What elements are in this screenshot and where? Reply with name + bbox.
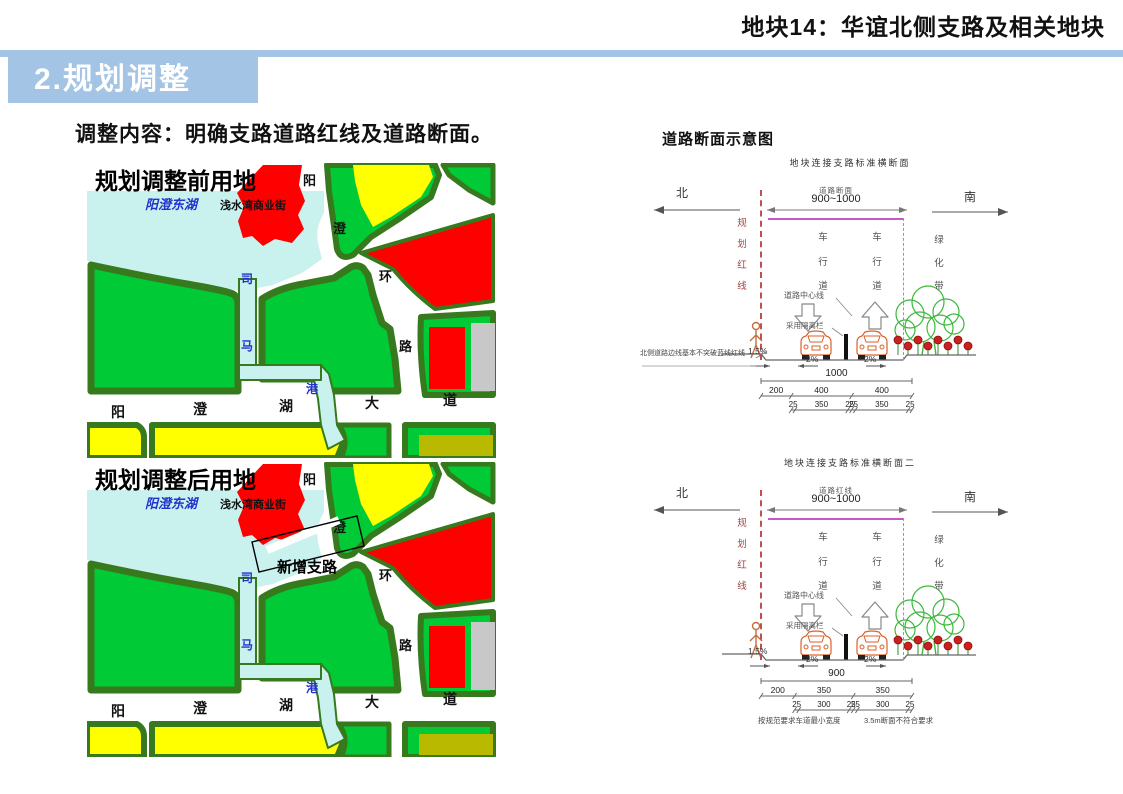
flower-icon [964,342,972,350]
flower-icon [894,636,902,644]
parcel-red-block [429,626,465,688]
avenue-label-char: 道 [443,691,457,707]
dim-sub-segment: 350 [868,400,896,409]
slope-label: 1.5% [748,646,767,656]
red-line-dashed [760,190,762,360]
map-title: 规划调整后用地 [95,467,256,493]
commercial-street-label: 浅水湾商业街 [220,198,286,212]
river [239,664,321,679]
dim-sub-segment: 25 [779,400,807,409]
north-arrow-icon [654,206,664,214]
flower-icon [924,342,932,350]
dim-sub-segment: 25 [839,400,867,409]
centerline-leader [836,298,852,316]
map-before: 规划调整前用地阳澄东湖浅水湾商业街阳澄环路阳澄湖大道司马港 [87,163,497,458]
avenue-label-char: 湖 [279,697,293,713]
ring-road-label-char: 路 [399,339,413,354]
magenta-roof-line [768,518,904,520]
green-belt-label: 绿化带 [932,230,946,298]
dim-segment: 400 [862,385,902,395]
dim-sub-segment: 350 [807,400,835,409]
car-icon [801,331,831,355]
dim-segment: 200 [756,385,796,395]
ring-road-label-char: 环 [379,568,392,583]
barrier-leader [832,628,843,636]
section-banner-title: 2.规划调整 [34,57,191,103]
ring-road-label-char: 环 [379,269,392,284]
dim-arrow-icon [899,507,907,513]
tree-icon [944,614,964,634]
car-wheel [879,355,886,360]
parcel-yellow [87,425,144,458]
right-edge-dashed [903,218,904,360]
bottom-note: 按规范要求车道最小宽度 [758,715,858,726]
barrier-label: 采用隔离栏 [786,320,824,331]
tree-icon [933,299,959,325]
top-rule [0,50,1123,57]
lake-label: 阳澄东湖 [145,197,200,212]
centerline-label: 道路中心线 [784,590,824,601]
avenue-label-char: 大 [365,395,379,411]
tree-icon [896,300,924,328]
flower-icon [954,336,962,344]
lane-label-right: 车行道 [870,226,884,300]
south-arrow-icon [998,508,1008,516]
lane-label-left: 车行道 [816,226,830,300]
up-arrow-icon [862,602,888,629]
flower-icon [934,636,942,644]
parcel-gray-block [471,622,495,690]
avenue-label-char: 阳 [111,404,125,420]
dim-total: 900 [761,668,912,679]
dim-sub-segment: 25 [783,700,811,709]
flower-icon [944,342,952,350]
river-label-char: 马 [241,339,253,353]
slope-label: 2% [864,654,876,664]
cross-section-1: 地块连接支路标准横断面北南道路断面900~1000规划红线车行道车行道绿化带道路… [640,152,1120,450]
river-label-char: 司 [241,571,253,585]
tree-icon [896,600,924,628]
flower-icon [894,336,902,344]
ring-road-label-char: 路 [399,638,413,653]
parcel-yellow [152,724,345,757]
avenue-label-char: 澄 [193,700,208,716]
dim-segment: 350 [804,685,844,695]
slide: 地块14：华谊北侧支路及相关地块 2.规划调整 调整内容：明确支路道路红线及道路… [0,0,1123,794]
centerline-label: 道路中心线 [784,290,824,301]
parcel-olive-block [419,435,493,456]
cross-section-2: 地块连接支路标准横断面二北南道路红线900~1000规划红线车行道车行道绿化带道… [640,452,1120,750]
ring-road-label-char: 阳 [303,173,316,188]
dim-sub-segment: 300 [869,700,897,709]
avenue-label-char: 阳 [111,703,125,719]
up-arrow-icon [862,302,888,329]
south-arrow-icon [998,208,1008,216]
parcel-red-block [429,327,465,389]
red-line-label: 规划红线 [735,514,749,598]
avenue-label-char: 道 [443,392,457,408]
flower-icon [914,336,922,344]
parcel-green [339,425,389,458]
dim-segment: 400 [801,385,841,395]
car-icon [857,331,887,355]
dim-arrow-icon [767,507,775,513]
car-wheel [823,655,830,660]
car-icon [857,631,887,655]
dim-sub-segment: 300 [810,700,838,709]
cross-section-panel-title: 道路断面示意图 [662,128,774,149]
slope-label: 2% [806,354,818,364]
flower-icon [924,642,932,650]
river-label-char: 港 [306,381,319,396]
lane-label-left: 车行道 [816,526,830,600]
flower-icon [944,642,952,650]
car-wheel [879,655,886,660]
tree-icon [933,599,959,625]
flower-icon [934,336,942,344]
dim-total: 1000 [761,368,912,379]
river-label-char: 港 [306,680,319,695]
car-wheel [823,355,830,360]
ring-road-label-char: 阳 [303,472,316,487]
map-after: 规划调整后用地阳澄东湖浅水湾商业街阳澄环路阳澄湖大道司马港新增支路 [87,462,497,757]
parcel-gray-block [471,323,495,391]
dim-arrow-icon [767,207,775,213]
river-label-char: 司 [241,272,253,286]
dim-sub-segment: 25 [841,700,869,709]
river [239,365,321,380]
lake-label: 阳澄东湖 [145,496,200,511]
lane-label-right: 车行道 [870,526,884,600]
right-edge-dashed [903,518,904,660]
adjustment-intro-text: 调整内容：明确支路道路红线及道路断面。 [75,118,493,148]
width-value: 900~1000 [770,193,902,205]
dim-arrow-icon [899,207,907,213]
car-icon [801,631,831,655]
parcel-olive-block [419,734,493,755]
red-line-label: 规划红线 [735,214,749,298]
person-icon [753,323,760,330]
tree-icon [944,314,964,334]
dim-segment: 350 [863,685,903,695]
north-arrow-icon [654,506,664,514]
red-line-dashed [760,490,762,660]
barrier-icon [844,634,848,660]
flower-icon [914,636,922,644]
parcel-green [339,724,389,757]
river-label-char: 马 [241,638,253,652]
commercial-street-label: 浅水湾商业街 [220,497,286,511]
avenue-label-char: 澄 [193,401,208,417]
parcel-yellow [87,724,144,757]
centerline-leader [836,598,852,616]
dim-sub-segment: 25 [896,400,924,409]
barrier-leader [832,328,843,336]
dim-sub-segment: 25 [896,700,924,709]
barrier-icon [844,334,848,360]
bottom-note: 3.5m断面不符合要求 [864,715,964,726]
magenta-roof-line [768,218,904,220]
green-belt-label: 绿化带 [932,530,946,598]
parcel-yellow [152,425,345,458]
map-title: 规划调整前用地 [95,168,256,194]
dim-segment: 200 [758,685,798,695]
person-icon [753,623,760,630]
avenue-label-char: 湖 [279,398,293,414]
width-value: 900~1000 [770,493,902,505]
slope-label: 2% [864,354,876,364]
side-note: 北侧道路边线基本不突破蓝线红线 [640,350,756,358]
new-road-label: 新增支路 [277,558,338,576]
page-title: 地块14：华谊北侧支路及相关地块 [741,8,1105,42]
ring-road-label-char: 澄 [333,221,347,236]
slope-label: 2% [806,654,818,664]
flower-icon [964,642,972,650]
barrier-label: 采用隔离栏 [786,620,824,631]
flower-icon [904,342,912,350]
flower-icon [954,636,962,644]
flower-icon [904,642,912,650]
avenue-label-char: 大 [365,694,379,710]
